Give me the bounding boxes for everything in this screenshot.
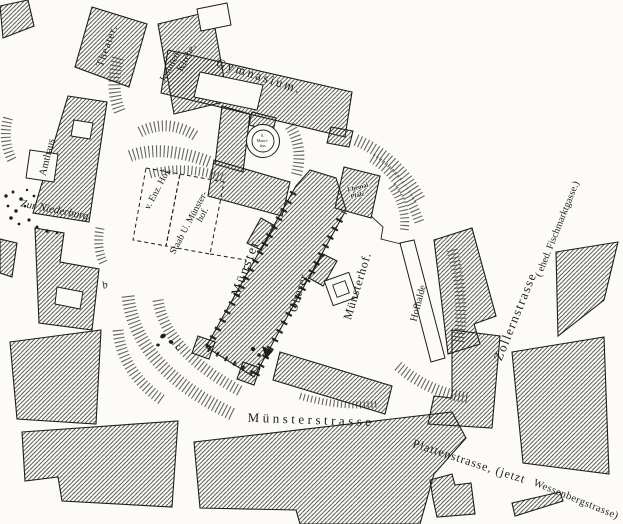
building-left-edge-sliver	[0, 239, 17, 277]
map-svg: Theater. Jesuiten- Kirche. Gymnasium. S.…	[0, 0, 623, 524]
hachure-east-of-rotunda	[290, 126, 299, 176]
building-bottom-right-large	[512, 337, 609, 474]
building-left-large	[10, 330, 101, 424]
label-marker-c: c	[176, 342, 181, 353]
label-muensterstrasse: Münsterstrasse	[247, 410, 374, 429]
building-bottom-center	[194, 412, 466, 524]
historical-map-canvas: Theater. Jesuiten- Kirche. Gymnasium. S.…	[0, 0, 623, 524]
hachure-mid-2	[130, 151, 210, 162]
muensterhof-north-boundary	[371, 216, 401, 244]
hachure-below-amthaus	[99, 228, 104, 264]
jesuiten-roof-notch	[197, 3, 231, 31]
hachure-left-edge	[6, 118, 12, 160]
building-gymnasium-foot	[327, 127, 353, 147]
building-bottom-small-l	[430, 474, 475, 517]
building-corner-top-left	[0, 0, 34, 38]
building-bottom-left-l	[22, 421, 178, 507]
building-triangle-east	[556, 242, 618, 336]
label-marker-b: b	[101, 280, 110, 292]
buildings	[0, 0, 618, 524]
hachure-mid-1	[140, 126, 196, 136]
hachure-pfalz-east	[392, 186, 405, 232]
building-south-terrace-strip	[273, 352, 392, 414]
building-chapter-wing-east	[208, 160, 290, 216]
hachure-ne-fan-2	[372, 158, 420, 224]
amthaus-courtyard	[71, 120, 93, 139]
building-left-mid	[35, 228, 99, 330]
